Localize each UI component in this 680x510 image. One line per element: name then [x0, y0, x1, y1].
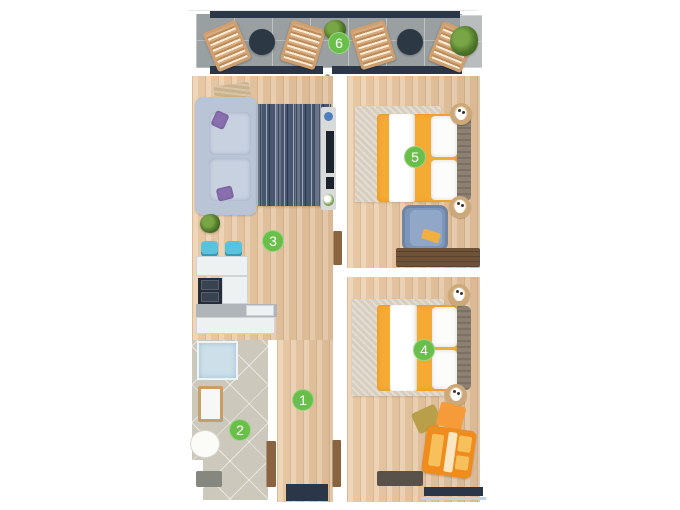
room-badge-5[interactable]: 5 [404, 146, 426, 168]
bedroom-lower-pillows [432, 307, 457, 389]
pillow [431, 160, 457, 201]
tv-console [321, 107, 336, 210]
dog-icon [455, 200, 465, 213]
lounger-patch [428, 434, 444, 467]
pet-bed-upper-2 [449, 196, 471, 218]
kitchen-counter-lower [196, 317, 275, 334]
pillow [432, 307, 457, 347]
bar-stool-2 [225, 241, 242, 257]
tv-screen [326, 131, 334, 173]
bathroom-mat [196, 471, 222, 487]
kitchen-counter-mid [222, 276, 248, 304]
dog-icon [454, 288, 464, 301]
shower [197, 341, 238, 380]
media-box [326, 177, 334, 189]
bar-stool-1 [201, 241, 218, 257]
bedroom-upper-door [333, 231, 342, 265]
window-sill [421, 497, 486, 500]
dog-icon [456, 107, 466, 120]
living-room-rug [257, 104, 331, 206]
kitchen-dishwasher [246, 305, 274, 316]
sofa [195, 97, 257, 215]
balcony-railing [210, 11, 460, 18]
stove-burner-2 [201, 292, 219, 302]
bedroom-upper-pillows [431, 116, 457, 200]
room-badge-6[interactable]: 6 [328, 32, 350, 54]
room-badge-4[interactable]: 4 [413, 339, 435, 361]
pillow [432, 350, 457, 390]
dog-icon [451, 388, 461, 401]
pet-bed-upper-1 [450, 103, 472, 125]
lounger-patch [455, 455, 470, 471]
kitchen-counter-upper [196, 256, 248, 276]
toilet [190, 430, 220, 458]
vase-flowers [323, 194, 334, 206]
living-room-plant [200, 214, 220, 233]
balcony-plant-right [450, 26, 478, 56]
decor-plate [324, 112, 333, 121]
hallway-floor [277, 340, 333, 502]
bedroom-upper-headboard [457, 115, 471, 201]
bedroom-upper-armchair [402, 205, 448, 251]
bedroom-lower-headboard [457, 306, 471, 390]
kitchen-stove [198, 278, 222, 304]
bedroom-lower-door [332, 440, 341, 487]
bedroom-lower-bench [377, 471, 423, 486]
pet-bed-lower-1 [448, 284, 470, 306]
bathroom-door [266, 441, 276, 487]
room-badge-1[interactable]: 1 [292, 389, 314, 411]
floorplan-canvas: 1 2 3 4 5 6 [0, 0, 680, 510]
balcony-table-2 [397, 29, 423, 55]
stove-burner-1 [201, 280, 219, 290]
bean-bag-lounger [421, 425, 477, 479]
room-badge-2[interactable]: 2 [229, 419, 251, 441]
balcony-door-frame-right [332, 66, 462, 74]
lounger-patch [457, 435, 472, 453]
bedroom-lower-window [424, 487, 483, 496]
balcony-table-1 [249, 29, 275, 55]
room-badge-3[interactable]: 3 [262, 230, 284, 252]
bedroom-upper-dresser [396, 248, 480, 267]
entry-door-mat [286, 484, 328, 501]
bathroom-sink-vanity [198, 386, 223, 422]
